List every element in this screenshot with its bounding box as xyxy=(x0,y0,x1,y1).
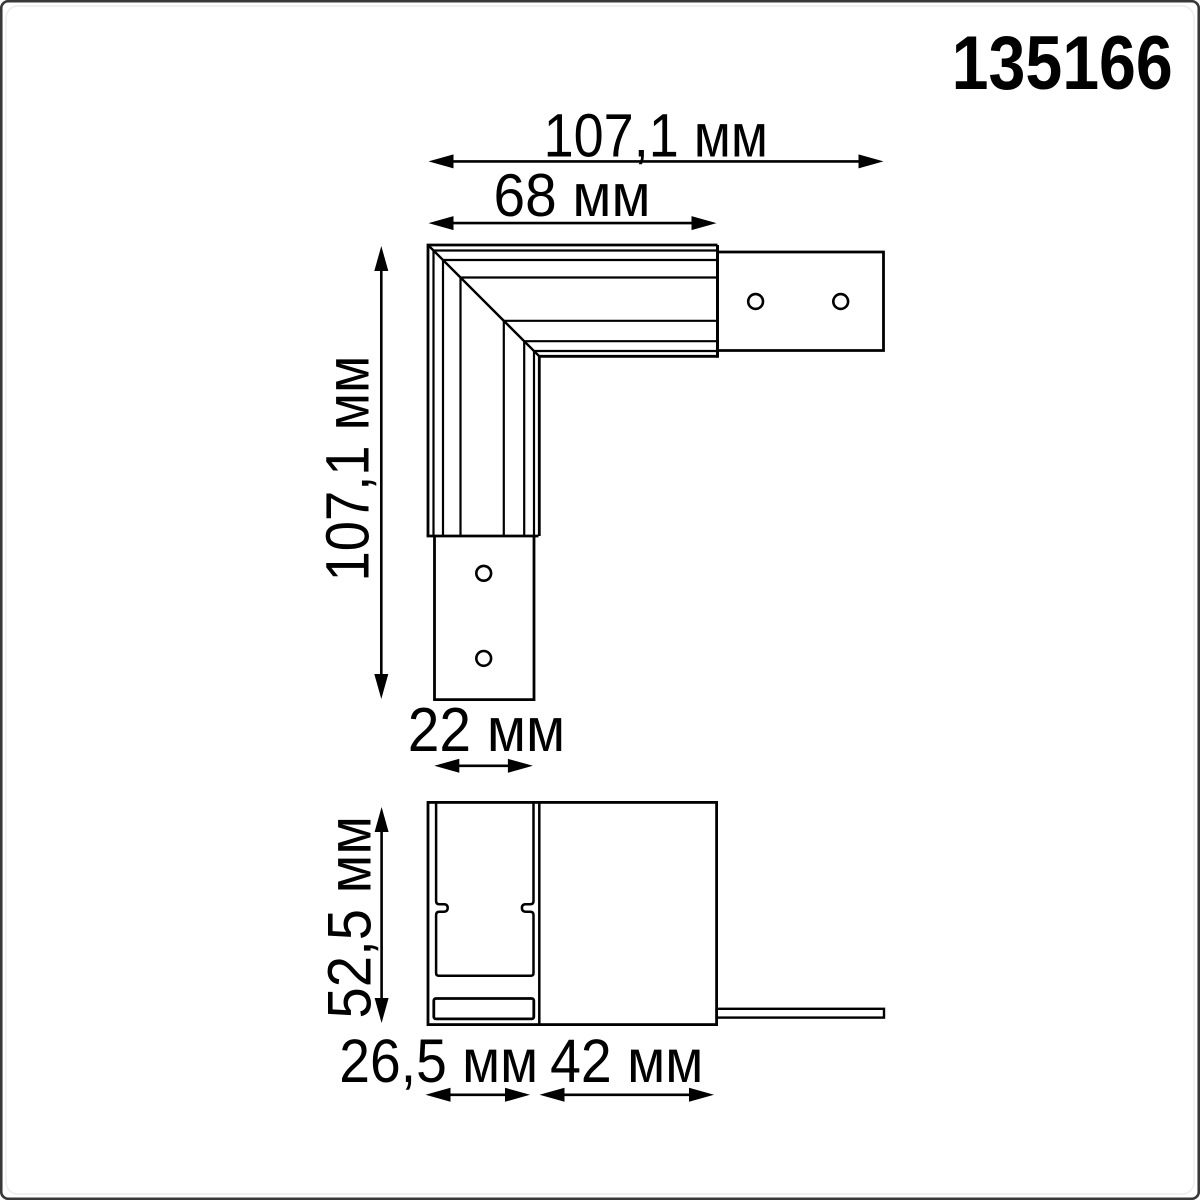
svg-text:42 мм: 42 мм xyxy=(550,1027,703,1095)
svg-text:52,5 мм: 52,5 мм xyxy=(316,816,384,1019)
svg-text:22 мм: 22 мм xyxy=(408,696,565,765)
svg-text:135166: 135166 xyxy=(952,21,1173,106)
svg-text:107,1 мм: 107,1 мм xyxy=(544,102,768,170)
svg-text:107,1 мм: 107,1 мм xyxy=(314,356,382,582)
svg-text:26,5 мм: 26,5 мм xyxy=(339,1027,538,1095)
svg-text:68 мм: 68 мм xyxy=(494,162,651,229)
